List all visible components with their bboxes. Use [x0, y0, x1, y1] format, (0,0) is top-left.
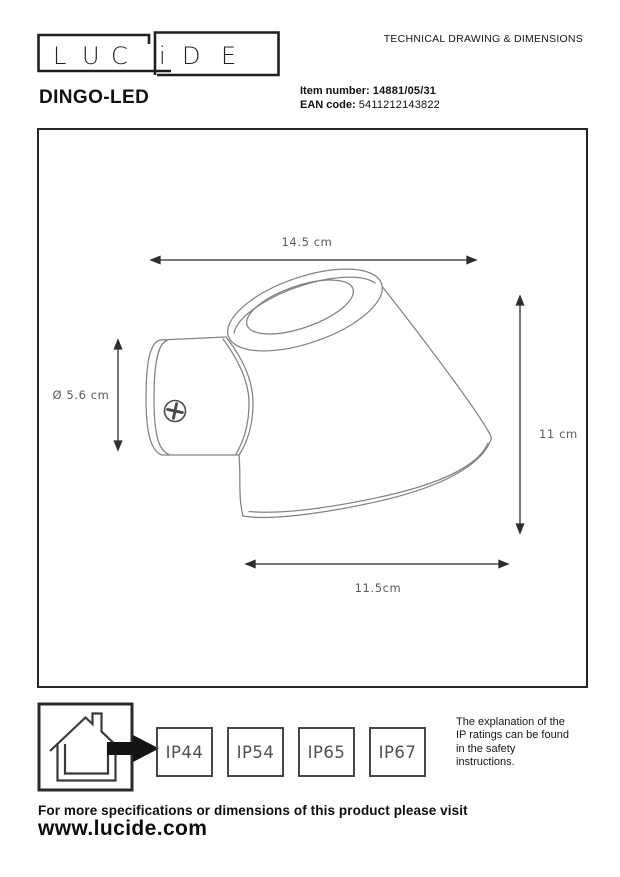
dim-label-diameter: Ø 5.6 cm	[53, 388, 110, 402]
mount-cap-inner-edge	[154, 341, 169, 455]
phillips-screw-icon	[165, 401, 186, 422]
item-number-row: Item number: 14881/05/31	[300, 85, 440, 99]
logo-letter: C	[111, 42, 128, 70]
dim-label-height: 11 cm	[539, 427, 578, 441]
shade-bottom-edge	[243, 438, 492, 517]
logo-letter: L	[53, 42, 66, 70]
ip-rating-badge: IP67	[369, 727, 426, 777]
ip-rating-badge: IP54	[227, 727, 284, 777]
ean-value: 5411212143822	[359, 99, 440, 111]
footer-visit-text: For more specifications or dimensions of…	[38, 803, 468, 818]
ip-note-line: instructions.	[456, 756, 586, 769]
logo-letter: D	[182, 42, 200, 70]
house-outdoor-arrow-icon	[37, 702, 161, 795]
dimension-annotations: 14.5 cm Ø 5.6 cm 11 cm 11.5cm	[53, 235, 578, 595]
shade-opening-inner	[240, 269, 360, 345]
ip-note-line: The explanation of the	[456, 716, 586, 729]
document-title: TECHNICAL DRAWING & DIMENSIONS	[384, 33, 583, 45]
technical-drawing: 14.5 cm Ø 5.6 cm 11 cm 11.5cm	[39, 130, 586, 686]
ip-note-line: in the safety	[456, 743, 586, 756]
mount-cone-joint-inner	[223, 339, 249, 454]
shade-right-edge	[383, 288, 492, 439]
product-name: DINGO-LED	[39, 87, 149, 109]
logo-letter: E	[221, 42, 236, 70]
lamp-side-view	[146, 252, 492, 517]
mount-top-edge	[160, 337, 226, 340]
shade-bottom-edge-inner	[249, 443, 488, 512]
item-number-label: Item number:	[300, 85, 370, 97]
dim-label-bottom-width: 11.5cm	[355, 581, 402, 595]
lamp-shade-cone	[218, 252, 492, 517]
spec-sheet-page: { "colors": { "ink": "#1c1c1c", "drawing…	[0, 0, 620, 877]
technical-drawing-frame: 14.5 cm Ø 5.6 cm 11 cm 11.5cm	[37, 128, 588, 688]
shade-rim-outer	[218, 252, 393, 367]
ip-ratings-note: The explanation of the IP ratings can be…	[456, 716, 586, 770]
product-identifiers: Item number: 14881/05/31 EAN code: 54112…	[300, 85, 440, 112]
ip-rating-badge: IP44	[156, 727, 213, 777]
shade-left-lower-edge	[239, 455, 243, 516]
ean-row: EAN code: 5411212143822	[300, 99, 440, 113]
wall-mount-bracket	[146, 337, 253, 455]
logo-letter: i	[159, 42, 166, 70]
ip-note-line: IP ratings can be found	[456, 729, 586, 742]
ean-label: EAN code:	[300, 99, 356, 111]
ip-rating-badge: IP65	[298, 727, 355, 777]
dim-label-top-width: 14.5 cm	[282, 235, 333, 249]
shade-rim-lip	[234, 277, 375, 333]
logo-letter: U	[82, 42, 100, 70]
website-link[interactable]: www.lucide.com	[38, 817, 207, 841]
item-number-value: 14881/05/31	[373, 85, 436, 97]
lucide-logo: L U C i D E	[37, 30, 280, 77]
